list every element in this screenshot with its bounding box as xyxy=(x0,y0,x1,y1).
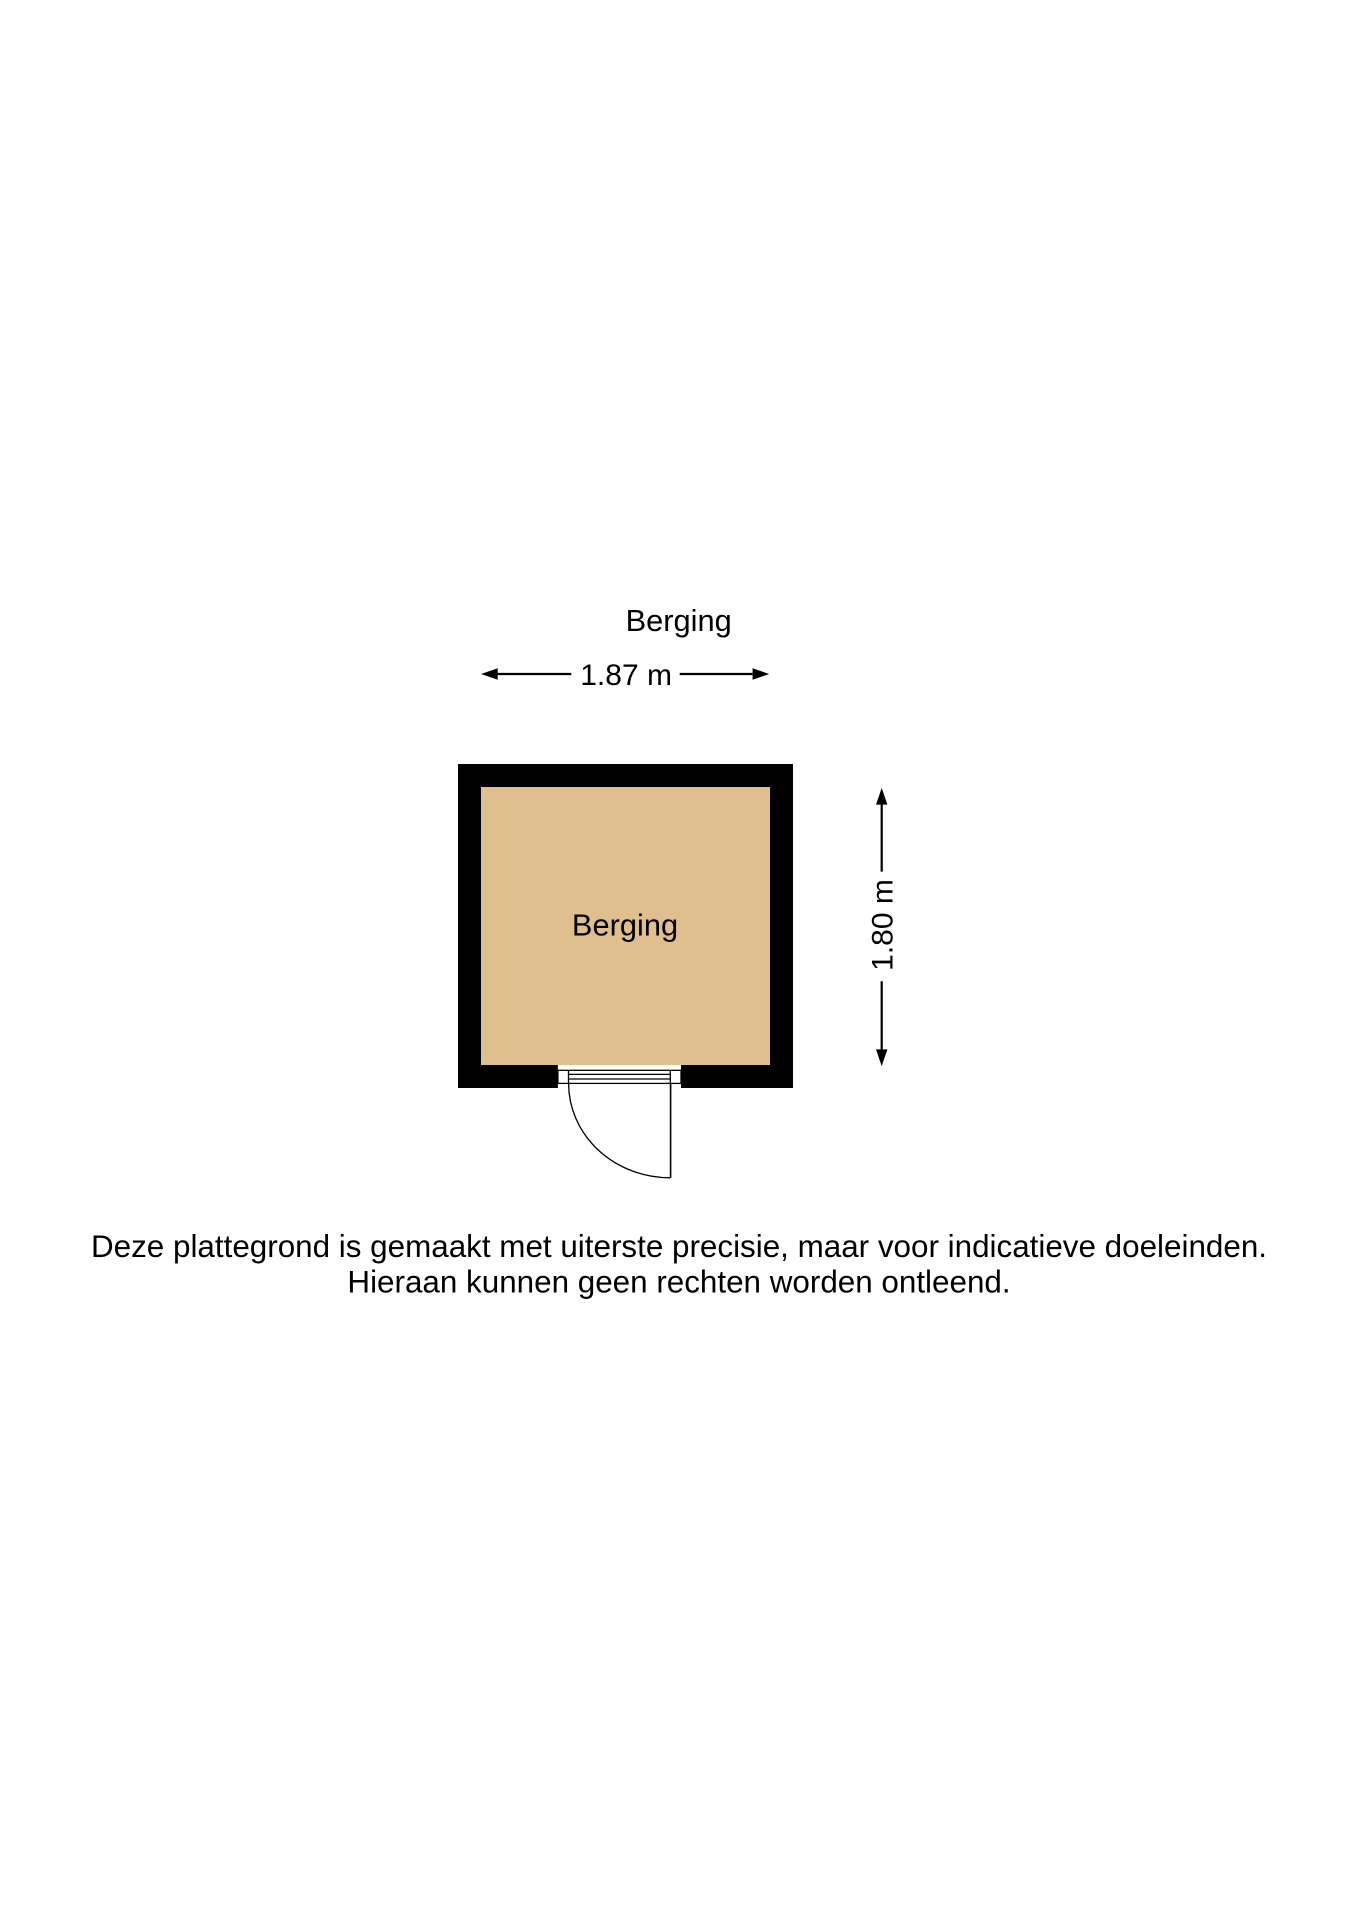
svg-text:Deze plattegrond is gemaakt me: Deze plattegrond is gemaakt met uiterste… xyxy=(91,1229,1267,1264)
svg-text:Berging: Berging xyxy=(626,603,732,638)
svg-text:Berging: Berging xyxy=(572,908,678,943)
svg-text:1.80 m: 1.80 m xyxy=(867,879,900,971)
svg-text:1.87 m: 1.87 m xyxy=(580,659,672,692)
svg-text:Hieraan kunnen geen rechten wo: Hieraan kunnen geen rechten worden ontle… xyxy=(347,1265,1010,1300)
